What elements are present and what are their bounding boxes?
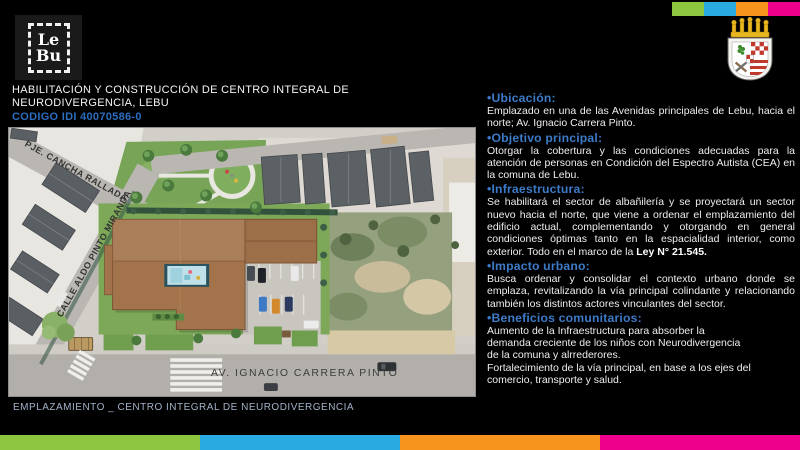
info-sections: •Ubicación: Emplazado en una de las Aven… [487,90,795,386]
section-heading-beneficios: •Beneficios comunitarios: [487,311,795,325]
slide-title-line1: HABILITACIÓN Y CONSTRUCCIÓN DE CENTRO IN… [12,84,349,97]
slide-background: Le Bu HABILITACIÓN Y CONSTRUCCIÓN DE CEN… [0,0,800,450]
vacant-lot [328,212,452,336]
courtyard-skylight [164,264,209,287]
accent-square-green [672,2,704,16]
project-code: CODIGO IDI 40070586-0 [12,111,142,123]
section-ubicacion: •Ubicación: Emplazado en una de las Aven… [487,91,795,130]
stripe-orange [400,435,600,450]
lebu-logo: Le Bu [15,15,82,80]
accent-stripe-bottom [0,435,800,450]
section-heading-infraestructura: •Infraestructura: [487,182,795,196]
accent-square-pink [768,2,800,16]
site-plan-svg: PJE. CANCHA RALLADA CALLE ALDO PINTO MIR… [9,128,475,396]
slide-title-line2: NEURODIVERGENCIA, LEBU [12,97,349,110]
north-wing-roof [245,219,317,263]
map-caption: EMPLAZAMIENTO _ CENTRO INTEGRAL DE NEURO… [13,402,354,413]
accent-squares-top [672,2,800,16]
section-body-ubicacion: Emplazado en una de las Avenidas princip… [487,105,795,130]
section-heading-objetivo: •Objetivo principal: [487,131,795,145]
section-heading-ubicacion: •Ubicación: [487,91,795,105]
stripe-green [0,435,200,450]
lebu-coat-of-arms [717,16,783,84]
section-impacto: •Impacto urbano: Busca ordenar y consoli… [487,259,795,310]
coat-of-arms-graphic [717,16,783,84]
section-body-beneficios: Aumento de la Infraestructura para absor… [487,325,795,386]
section-body-infraestructura: Se habilitará el sector de albañilería y… [487,196,795,257]
lebu-logo-line2: Bu [36,48,61,63]
crown-icon [731,17,769,37]
bus-shelter [69,337,93,350]
section-infraestructura: •Infraestructura: Se habilitará el secto… [487,182,795,257]
accent-square-orange [736,2,768,16]
stripe-blue [200,435,400,450]
section-body-impacto: Busca ordenar y consolidar el contexto u… [487,273,795,310]
section-heading-impacto: •Impacto urbano: [487,259,795,273]
street-label-ignacio-carrera-pinto: AV. IGNACIO CARRERA PINTO [211,368,398,379]
stripe-pink [600,435,800,450]
law-reference: Ley N° 21.545. [636,246,707,258]
slide-title: HABILITACIÓN Y CONSTRUCCIÓN DE CENTRO IN… [12,84,349,110]
lebu-logo-frame: Le Bu [28,23,70,73]
accent-square-blue [704,2,736,16]
section-beneficios: •Beneficios comunitarios: Aumento de la … [487,311,795,386]
site-plan-image: PJE. CANCHA RALLADA CALLE ALDO PINTO MIR… [8,127,476,397]
section-objetivo: •Objetivo principal: Otorgar la cobertur… [487,131,795,182]
section-body-objetivo: Otorgar la cobertura y las condiciones a… [487,145,795,182]
